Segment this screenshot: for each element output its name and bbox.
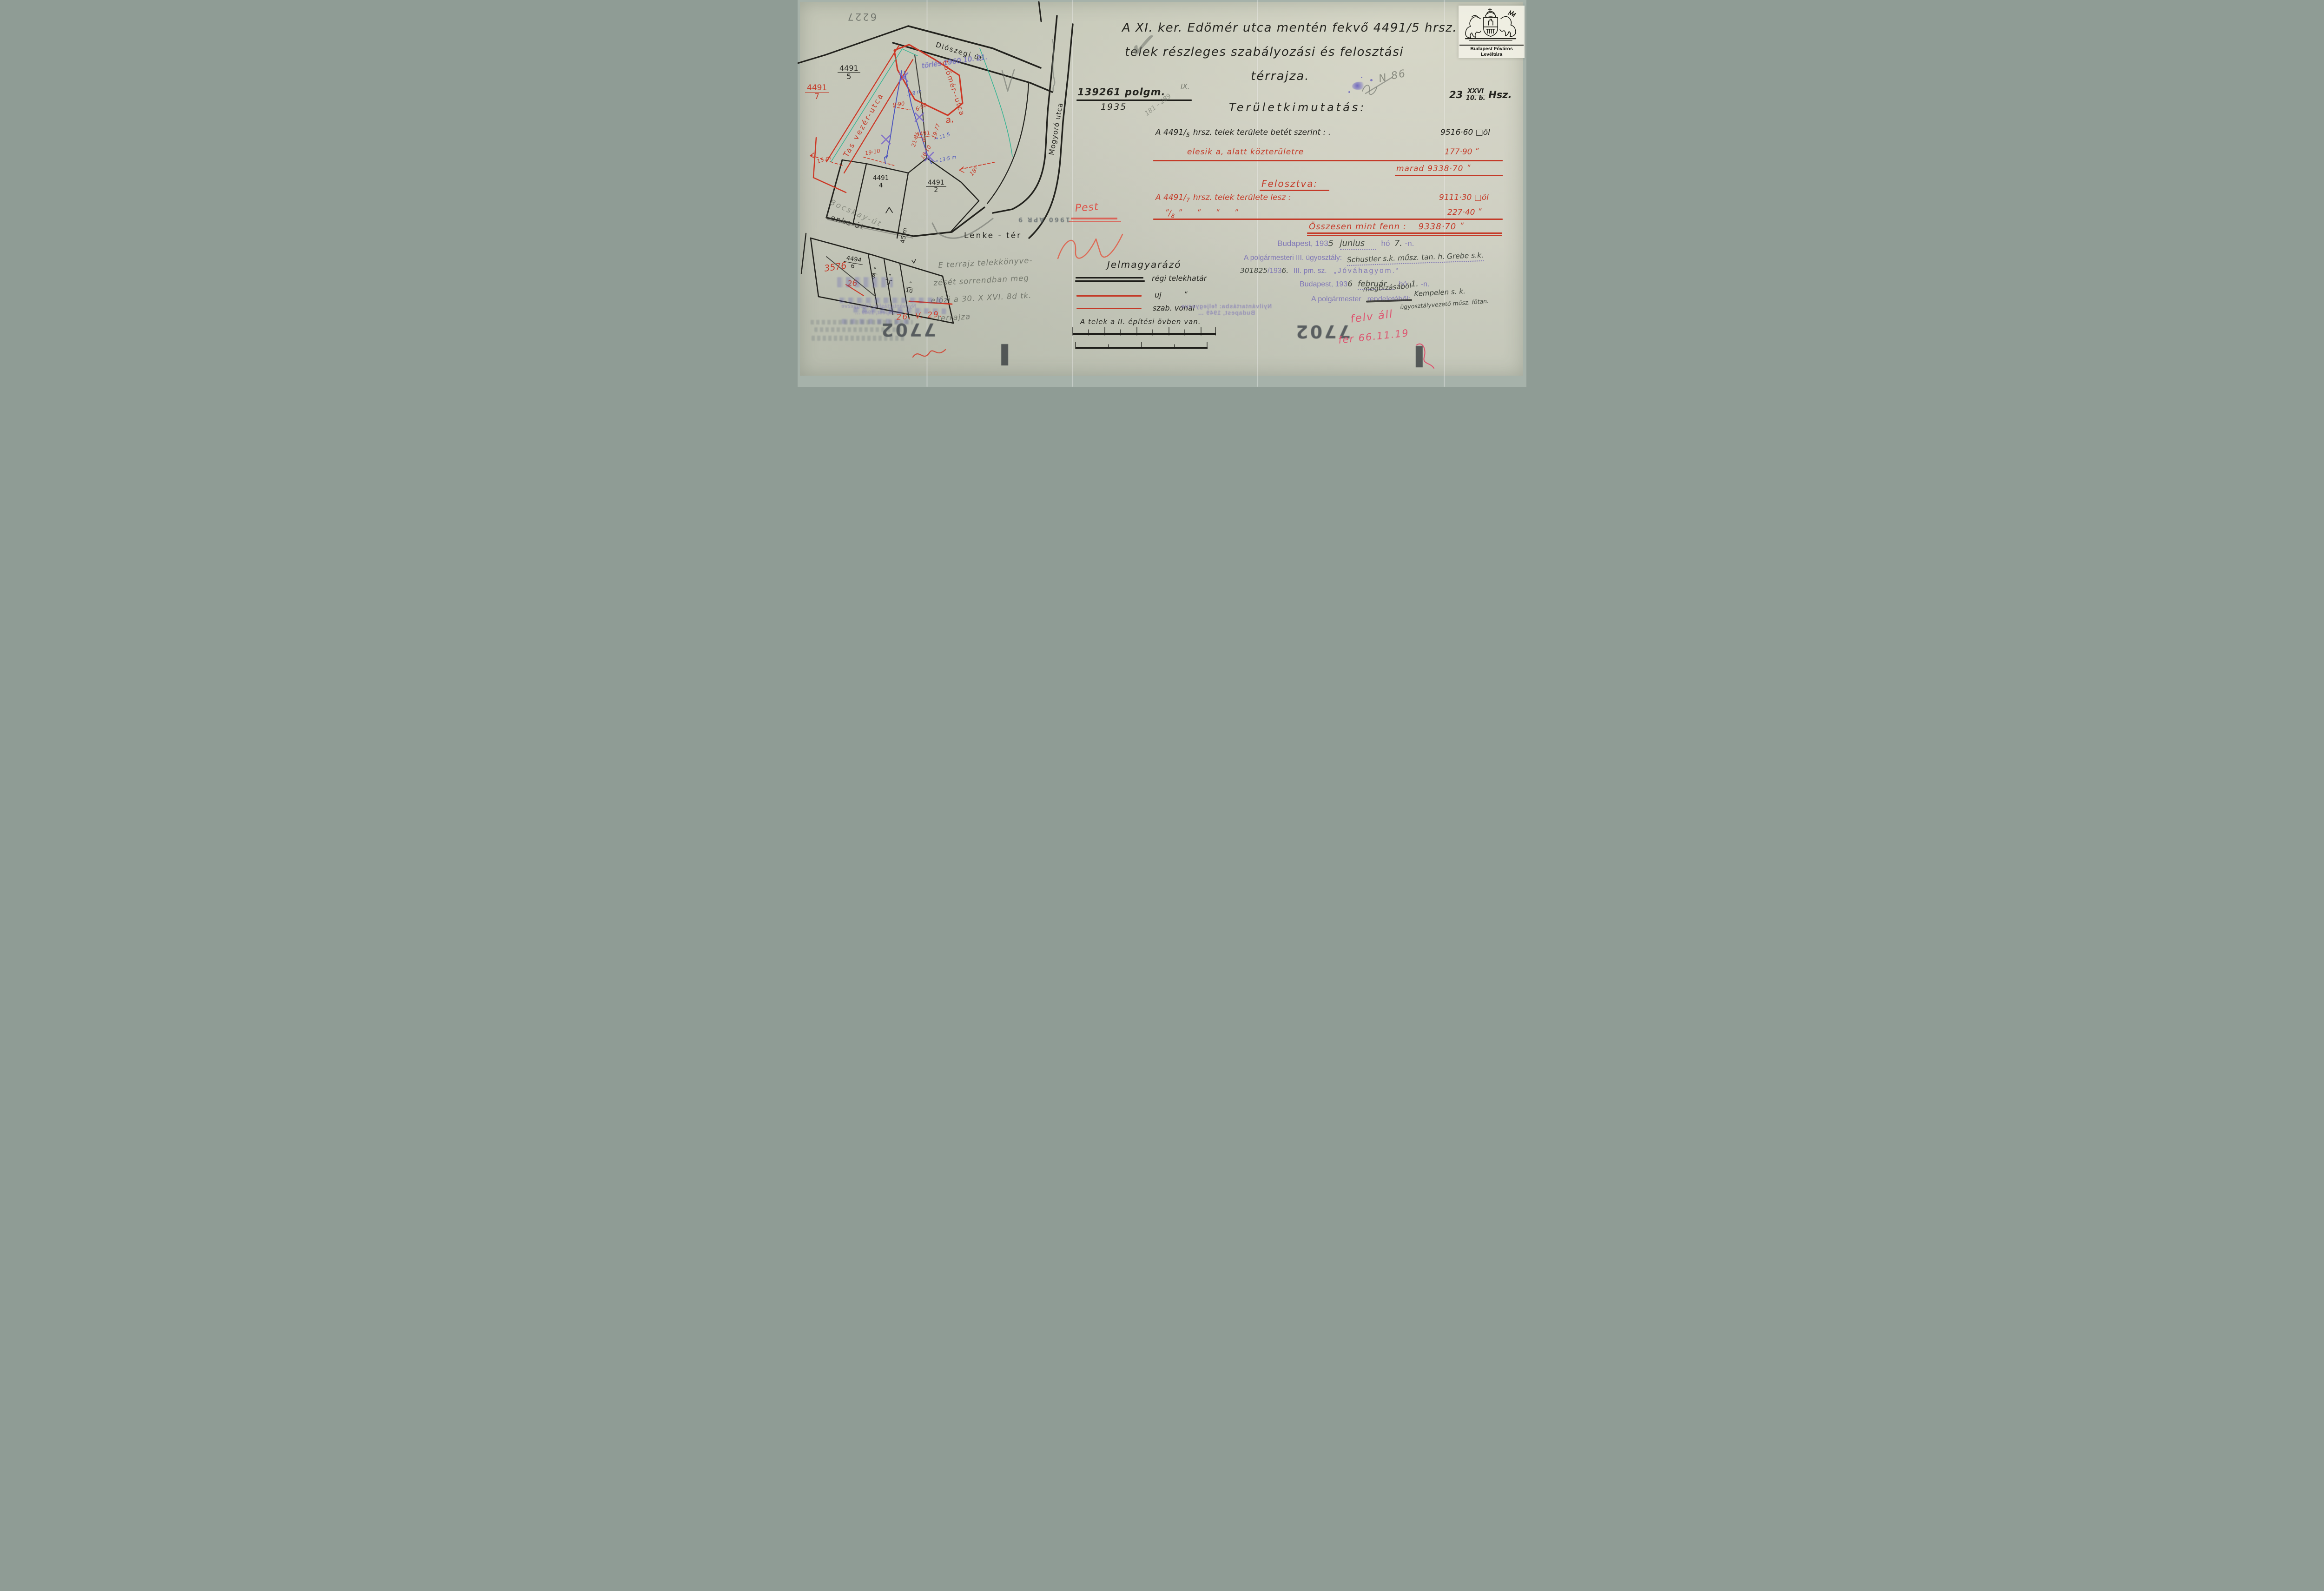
- table-row2-label: elesik a, alatt közterületre: [1187, 148, 1304, 157]
- l4-day: 1.: [1411, 279, 1419, 289]
- l4-year: 6: [1347, 279, 1353, 289]
- legend-item1-label: régi telekhatár: [1152, 274, 1207, 283]
- table-row3: marad9338·70 ʺ: [1396, 165, 1471, 174]
- archive-logo: Budapest Főváros Levéltára: [1459, 6, 1525, 58]
- title-line1-text: A XI. ker. Edömér utca mentén fekvő 4491…: [1122, 21, 1457, 35]
- l1-stamp-c: -n.: [1405, 239, 1414, 248]
- parcel-4491-5-num: 4491: [838, 64, 860, 73]
- pest-underline-1: [1071, 218, 1117, 219]
- table-row5-label: ʺ/8ʺ ʺ ʺ ʺ: [1165, 209, 1238, 219]
- shield-tower: [1489, 19, 1493, 25]
- parcel-4491-7-den: 7: [805, 93, 829, 101]
- legend-heading: Jelmagyarázó: [1107, 259, 1182, 270]
- sheet-ref: 23 XXVI10. b. Hsz.: [1449, 88, 1512, 102]
- sheet-ref-fraction: XXVI10. b.: [1466, 88, 1486, 102]
- row4-den: 7: [1186, 197, 1190, 203]
- table-row2-value: 177·90 ʺ: [1445, 148, 1479, 157]
- red-rule-1: [1153, 160, 1503, 161]
- l3-stamp-a: /193: [1268, 267, 1281, 275]
- row5-num: ʺ/: [1165, 209, 1171, 218]
- title-line2-text: telek részleges szabályozási és felosztá…: [1125, 45, 1404, 59]
- red-rule-3: [1153, 219, 1503, 220]
- lion-left: [1466, 17, 1481, 38]
- sheet-ref-suffix: Hsz.: [1488, 89, 1512, 100]
- l1-stamp-b: hó: [1381, 239, 1390, 248]
- row6-label: Összesen mint fenn :: [1309, 222, 1406, 232]
- street-label-lenke-ter: Lenke - tér: [964, 232, 1022, 241]
- approval-line2: A polgármesteri III. ügyosztály: Schustl…: [1244, 254, 1484, 264]
- parcel-4491-5-label: 44915: [838, 64, 860, 81]
- scanned-survey-document: Diószegi út Mogyoró utca Tas vezér-utca …: [798, 0, 1526, 387]
- shield-gates: [1486, 29, 1495, 33]
- mirrored-plate-number-text: 6227: [846, 11, 877, 22]
- l2-stamp: A polgármesteri III. ügyosztály:: [1244, 254, 1342, 262]
- subheading-text: Felosztva:: [1261, 178, 1318, 189]
- blue-bleed-smear: [837, 277, 893, 287]
- parcel-4491-7-num: 4491: [805, 84, 829, 93]
- registry-stamp-right-line1: Nyilvántartásba: feljegyezve: [1181, 303, 1272, 310]
- subheading-underline: [1260, 190, 1329, 191]
- parcel-4491-4-num: 4491: [871, 175, 891, 182]
- file-year-text: 1935: [1101, 102, 1127, 112]
- blue-bleed-line: [839, 298, 946, 303]
- l3-year: 6.: [1281, 266, 1288, 275]
- mirrored-1960-text: 1960 ÁPR 9: [1017, 216, 1070, 223]
- row5-value: 227·40 ʺ: [1447, 208, 1481, 217]
- archive-crest: [1459, 7, 1522, 43]
- parcel-4491-2-label: 44912: [926, 179, 946, 194]
- approval-line3: 301825/1936. III. pm. sz. „Jóváhagyom.“: [1240, 267, 1400, 275]
- row5-dittos: ʺ ʺ ʺ ʺ: [1178, 209, 1238, 218]
- table-heading: Területkimutatás:: [1229, 101, 1366, 114]
- row1-value: 9516·60 □öl: [1440, 128, 1490, 137]
- row1-den: 5: [1186, 132, 1190, 138]
- row2-value: 177·90 ʺ: [1445, 147, 1479, 157]
- legend-oldline-b: [1075, 280, 1145, 282]
- l1-year: 5: [1328, 239, 1334, 248]
- mirrored-plate-number: 6227: [846, 11, 877, 22]
- red-pest-note: Pest: [1075, 201, 1099, 214]
- row4-num: A 4491/: [1155, 193, 1186, 202]
- parcel-4491-5-den: 5: [838, 73, 860, 80]
- file-number: 139261 polgm.: [1077, 86, 1166, 98]
- title-line3-text: térrajza.: [1251, 69, 1310, 83]
- table-row4-label: A 4491/7hrsz. telek területe lesz :: [1155, 193, 1291, 203]
- red-rule-2: [1395, 175, 1503, 176]
- parcel-4494-10-den: 10: [905, 287, 913, 294]
- l3-stamp-b: III. pm. sz.: [1294, 267, 1327, 275]
- griffin-wing: [1508, 11, 1516, 17]
- file-number-underline: [1076, 99, 1192, 101]
- legend-item2a-text: uj: [1155, 291, 1162, 299]
- legend-newline: [1076, 295, 1142, 297]
- title-line3: térrajza.: [1251, 70, 1310, 84]
- mirrored-7702-left-text: 7702: [879, 319, 936, 340]
- parcel-4491-2-num: 4491: [926, 179, 946, 187]
- approval-line1: Budapest, 1935 junius hó 7. -n.: [1277, 239, 1414, 249]
- legend-regline: [1076, 308, 1142, 309]
- table-row4-value: 9111·30 □öl: [1439, 193, 1489, 203]
- table-row6: Összesen mint fenn :9338·70 ʺ: [1309, 222, 1464, 232]
- approval-line5: A polgármester rendeletéből:: [1311, 295, 1410, 304]
- l4-stamp-a: Budapest, 193: [1300, 280, 1347, 288]
- legend-zone-note: A telek a II. építési övben van.: [1080, 318, 1201, 326]
- row3-label: marad: [1396, 164, 1424, 173]
- parcel-4491-2-den: 2: [926, 187, 946, 194]
- red-rule-4b: [1307, 235, 1502, 236]
- mirrored-7702-left: 7702: [879, 319, 936, 339]
- legend-item2-label: ujʺ: [1155, 291, 1187, 299]
- ink-dot: [1370, 79, 1373, 81]
- l3-number: 301825: [1240, 266, 1268, 275]
- l1-month: junius: [1340, 239, 1376, 250]
- stamp-bar-right: [1416, 346, 1423, 367]
- street-label-lenke-ter-text: Lenke - tér: [964, 231, 1022, 240]
- row3-value: 9338·70 ʺ: [1427, 164, 1471, 173]
- parcel-4491-7-label: 44917: [805, 84, 829, 101]
- file-number-suffix-text: IX.: [1181, 82, 1189, 91]
- parcel-4491-4-den: 4: [871, 182, 891, 189]
- legend-zone-note-text: A telek a II. építési övben van.: [1080, 318, 1201, 326]
- l3-approved-quote: „Jóváhagyom.“: [1334, 267, 1400, 275]
- ink-dot: [1348, 91, 1350, 93]
- table-row5-value: 227·40 ʺ: [1447, 208, 1481, 218]
- table-heading-text: Területkimutatás:: [1229, 101, 1366, 114]
- legend-item1-text: régi telekhatár: [1152, 274, 1207, 283]
- legend-oldline-a: [1076, 277, 1143, 278]
- sheet-ref-den: 10. b.: [1466, 95, 1486, 102]
- griffin-right: [1500, 16, 1516, 37]
- archive-logo-caption: Budapest Főváros Levéltára: [1459, 45, 1524, 58]
- table-subheading: Felosztva:: [1261, 179, 1318, 189]
- archive-logo-caption-text: Budapest Főváros Levéltára: [1470, 46, 1513, 57]
- l1-stamp-a: Budapest, 193: [1277, 239, 1328, 248]
- table-row1-label: A 4491/5hrsz. telek területe betét szeri…: [1155, 128, 1331, 138]
- red-pest-text: Pest: [1075, 201, 1099, 214]
- row1-text: hrsz. telek területe betét szerint : .: [1193, 128, 1331, 137]
- ink-dot: [1361, 77, 1362, 78]
- l5-crossed-word: rendeletéből:: [1367, 295, 1411, 304]
- row6-value: 9338·70 ʺ: [1419, 222, 1464, 232]
- stamp-bar-left: [1001, 344, 1008, 365]
- file-number-text: 139261 polgm.: [1077, 86, 1166, 98]
- pest-underline-2: [1069, 221, 1121, 222]
- red-rule-4a: [1307, 232, 1502, 234]
- file-year: 1935: [1101, 102, 1127, 113]
- registry-stamp-right: Nyilvántartásba: feljegyezve Budapest, 1…: [1181, 303, 1272, 317]
- row2-label: elesik a, alatt közterületre: [1187, 147, 1304, 157]
- row1-num: A 4491/: [1155, 128, 1186, 137]
- l4-stamp-c: -n.: [1421, 280, 1430, 288]
- legend-item2b-text: ʺ: [1184, 291, 1187, 299]
- table-row1-value: 9516·60 □öl: [1440, 128, 1490, 138]
- sheet-ref-num: XXVI: [1466, 88, 1486, 95]
- sheet-ref-prefix: 23: [1449, 89, 1463, 100]
- row4-text: hrsz. telek területe lesz :: [1193, 193, 1291, 202]
- title-line1: A XI. ker. Edömér utca mentén fekvő 4491…: [1122, 21, 1457, 35]
- fold-crease: [1072, 0, 1073, 387]
- parcel-4491-4-label: 44914: [871, 175, 891, 189]
- l5-stamp: A polgármester: [1311, 295, 1361, 303]
- mirrored-1960-stamp: 1960 ÁPR 9: [1017, 215, 1070, 222]
- legend-heading-text: Jelmagyarázó: [1107, 259, 1182, 270]
- title-line2: telek részleges szabályozási és felosztá…: [1125, 46, 1404, 60]
- file-number-suffix: IX.: [1181, 83, 1189, 91]
- registry-stamp-right-line2: Budapest, 1949 …: [1181, 310, 1272, 316]
- l1-day: 7.: [1394, 239, 1402, 248]
- row4-value: 9111·30 □öl: [1439, 193, 1489, 202]
